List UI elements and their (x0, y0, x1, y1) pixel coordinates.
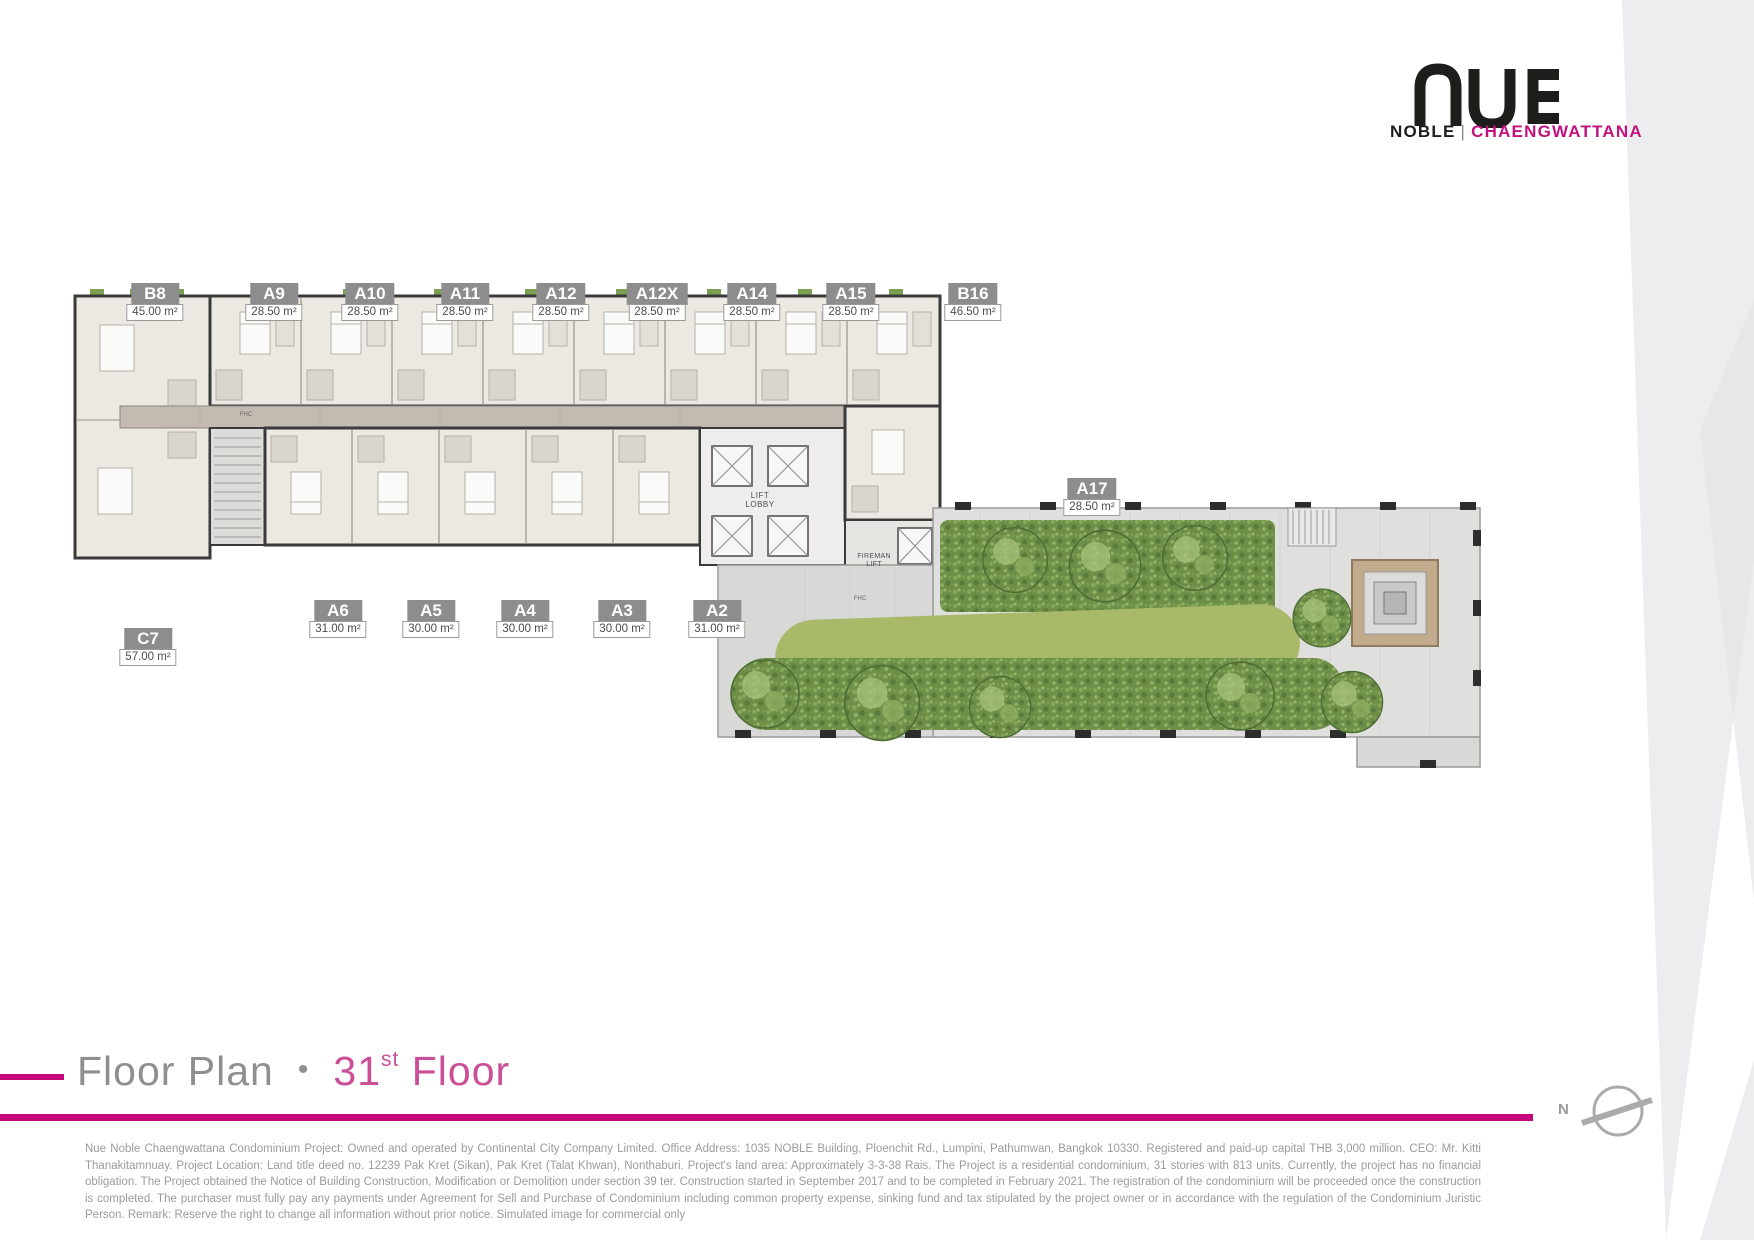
unit-area: 28.50 m² (1063, 499, 1120, 516)
nue-logo-mark (1411, 62, 1561, 128)
unit-id: C7 (124, 628, 172, 650)
unit-id: A5 (407, 600, 455, 622)
brand-subtitle: NOBLE|CHAENGWATTANA (1390, 122, 1670, 142)
unit-id: A9 (250, 283, 298, 305)
compass-north-label: N (1558, 1101, 1569, 1118)
unit-label-a3: A3 30.00 m² (593, 600, 650, 638)
unit-area: 28.50 m² (436, 304, 493, 321)
unit-id: A17 (1067, 478, 1116, 500)
unit-label-a2: A2 31.00 m² (688, 600, 745, 638)
residential-wing (75, 289, 940, 605)
unit-id: A15 (826, 283, 875, 305)
unit-label-a11: A11 28.50 m² (436, 283, 493, 321)
title-underline (0, 1114, 1533, 1121)
unit-area: 30.00 m² (593, 621, 650, 638)
unit-area: 28.50 m² (341, 304, 398, 321)
unit-label-c7: C7 57.00 m² (119, 628, 176, 666)
unit-id: B8 (131, 283, 179, 305)
brand-project-name: CHAENGWATTANA (1471, 122, 1643, 141)
unit-area: 31.00 m² (309, 621, 366, 638)
unit-label-a9: A9 28.50 m² (245, 283, 302, 321)
floorplan-page: NOBLE|CHAENGWATTANA B8 45.00 m² A9 28.50… (0, 0, 1754, 1240)
unit-area: 30.00 m² (402, 621, 459, 638)
title-floor-number: 31 (333, 1048, 381, 1094)
fhc-label: FHC (240, 412, 252, 419)
unit-area: 31.00 m² (688, 621, 745, 638)
fhc-label: FHC (854, 596, 866, 603)
unit-id: A6 (314, 600, 362, 622)
unit-id: A3 (598, 600, 646, 622)
unit-label-a10: A10 28.50 m² (341, 283, 398, 321)
unit-area: 28.50 m² (245, 304, 302, 321)
unit-id: A12X (627, 283, 688, 305)
unit-id: B16 (948, 283, 997, 305)
unit-label-b8: B8 45.00 m² (126, 283, 183, 321)
unit-area: 28.50 m² (723, 304, 780, 321)
unit-label-a14: A14 28.50 m² (723, 283, 780, 321)
unit-id: A14 (727, 283, 776, 305)
title-bullet: • (298, 1053, 310, 1086)
unit-id: A12 (536, 283, 585, 305)
title-floor-word: Floor (412, 1048, 510, 1094)
unit-label-b16: B16 46.50 m² (944, 283, 1001, 321)
unit-label-a6: A6 31.00 m² (309, 600, 366, 638)
brand-separator: | (1456, 122, 1472, 141)
unit-id: A4 (501, 600, 549, 622)
title-prefix: Floor Plan (77, 1048, 274, 1094)
unit-area: 28.50 m² (628, 304, 685, 321)
unit-id: A10 (345, 283, 394, 305)
unit-label-a15: A15 28.50 m² (822, 283, 879, 321)
fireman-lift-label: FIREMAN LIFT (857, 553, 891, 569)
unit-label-a17: A17 28.50 m² (1063, 478, 1120, 516)
title-floor-ordinal: st (381, 1048, 399, 1071)
title-suffix (399, 1048, 411, 1094)
unit-label-a12: A12 28.50 m² (532, 283, 589, 321)
title-accent-dash (0, 1074, 64, 1080)
unit-id: A2 (693, 600, 741, 622)
north-compass-icon (1582, 1087, 1652, 1135)
unit-label-a5: A5 30.00 m² (402, 600, 459, 638)
corner-decor-wedges (1622, 0, 1754, 1240)
brand-noble: NOBLE (1390, 122, 1456, 141)
page-title: Floor Plan•31st Floor (77, 1048, 510, 1102)
unit-area: 46.50 m² (944, 304, 1001, 321)
unit-area: 28.50 m² (822, 304, 879, 321)
unit-area: 30.00 m² (496, 621, 553, 638)
unit-id: A11 (441, 283, 489, 305)
lift-lobby-label: LIFT LOBBY (745, 491, 774, 509)
unit-area: 57.00 m² (119, 649, 176, 666)
unit-label-a4: A4 30.00 m² (496, 600, 553, 638)
disclaimer-text: Nue Noble Chaengwattana Condominium Proj… (85, 1141, 1481, 1224)
unit-area: 28.50 m² (532, 304, 589, 321)
unit-area: 45.00 m² (126, 304, 183, 321)
unit-label-a12x: A12X 28.50 m² (627, 283, 688, 321)
